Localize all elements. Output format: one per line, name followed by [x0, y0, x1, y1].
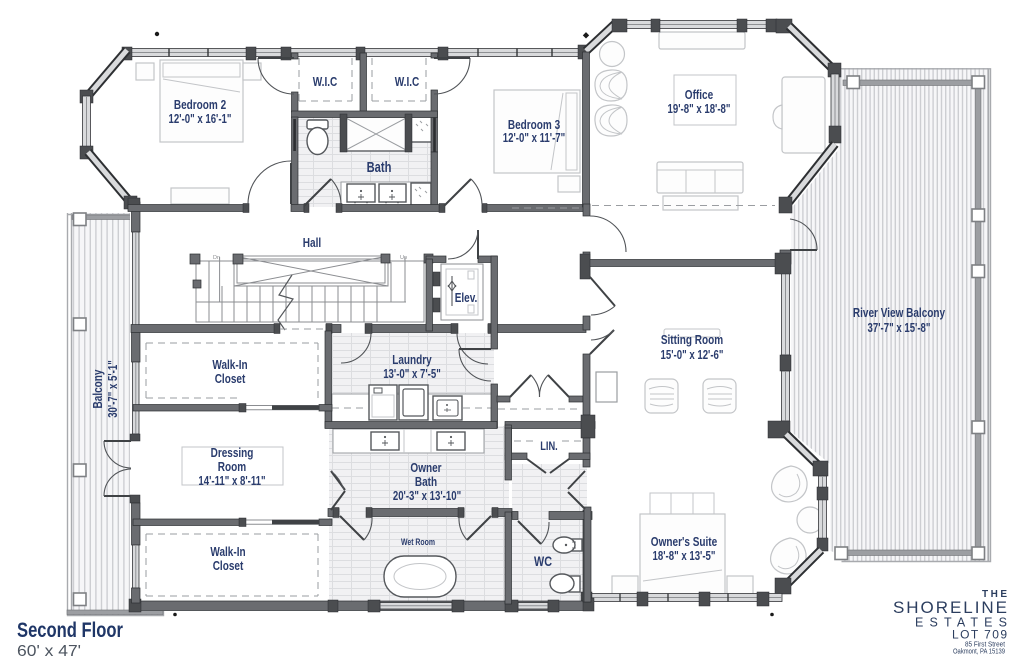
- svg-text:15'-0" x 12'-6": 15'-0" x 12'-6": [661, 348, 724, 362]
- svg-text:W.I.C: W.I.C: [395, 74, 420, 89]
- svg-text:13'-0" x 7'-5": 13'-0" x 7'-5": [383, 367, 441, 381]
- svg-text:River View Balcony: River View Balcony: [853, 305, 946, 320]
- svg-text:Laundry: Laundry: [392, 352, 432, 367]
- svg-text:Office: Office: [685, 87, 713, 102]
- svg-text:SHORELINE: SHORELINE: [893, 598, 1007, 617]
- svg-text:Sitting Room: Sitting Room: [661, 332, 723, 347]
- svg-text:14'-11" x 8'-11": 14'-11" x 8'-11": [198, 474, 265, 488]
- svg-text:Dn: Dn: [213, 255, 220, 261]
- svg-text:Bath: Bath: [367, 160, 392, 176]
- svg-text:WC: WC: [534, 553, 552, 569]
- svg-text:Closet: Closet: [213, 558, 244, 573]
- svg-text:Bedroom 2: Bedroom 2: [174, 97, 226, 112]
- svg-text:Owner: Owner: [410, 460, 441, 475]
- svg-text:Second Floor: Second Floor: [17, 619, 123, 642]
- svg-text:12'-0" x 16'-1": 12'-0" x 16'-1": [169, 112, 232, 126]
- svg-text:60' x 47': 60' x 47': [17, 643, 81, 660]
- svg-text:37'-7" x 15'-8": 37'-7" x 15'-8": [868, 321, 931, 335]
- svg-text:Walk-In: Walk-In: [212, 357, 247, 372]
- svg-text:Oakmont, PA 15139: Oakmont, PA 15139: [953, 649, 1005, 656]
- svg-text:Dressing: Dressing: [211, 445, 254, 460]
- svg-text:Closet: Closet: [215, 371, 246, 386]
- svg-text:LOT 709: LOT 709: [952, 628, 1007, 642]
- svg-text:Elev.: Elev.: [455, 290, 478, 305]
- svg-text:Walk-In: Walk-In: [210, 544, 245, 559]
- svg-text:Wet Room: Wet Room: [401, 537, 435, 547]
- svg-text:30'-7" x 5'-1": 30'-7" x 5'-1": [106, 360, 120, 418]
- svg-text:18'-8" x 13'-5": 18'-8" x 13'-5": [653, 549, 716, 563]
- svg-text:W.I.C: W.I.C: [313, 74, 338, 89]
- svg-text:Owner's Suite: Owner's Suite: [651, 534, 717, 549]
- svg-text:Room: Room: [218, 459, 246, 474]
- svg-text:Up: Up: [400, 255, 407, 261]
- svg-text:19'-8" x 18'-8": 19'-8" x 18'-8": [668, 102, 731, 116]
- svg-text:Bath: Bath: [415, 474, 437, 489]
- svg-text:20'-3" x 13'-10": 20'-3" x 13'-10": [393, 489, 461, 503]
- svg-text:85 First Street: 85 First Street: [965, 642, 1005, 649]
- svg-text:Bedroom 3: Bedroom 3: [508, 117, 560, 132]
- svg-text:12'-0" x 11'-7": 12'-0" x 11'-7": [503, 131, 565, 145]
- svg-text:LIN.: LIN.: [540, 439, 558, 453]
- svg-text:Hall: Hall: [303, 235, 321, 250]
- svg-text:Balcony: Balcony: [90, 369, 105, 408]
